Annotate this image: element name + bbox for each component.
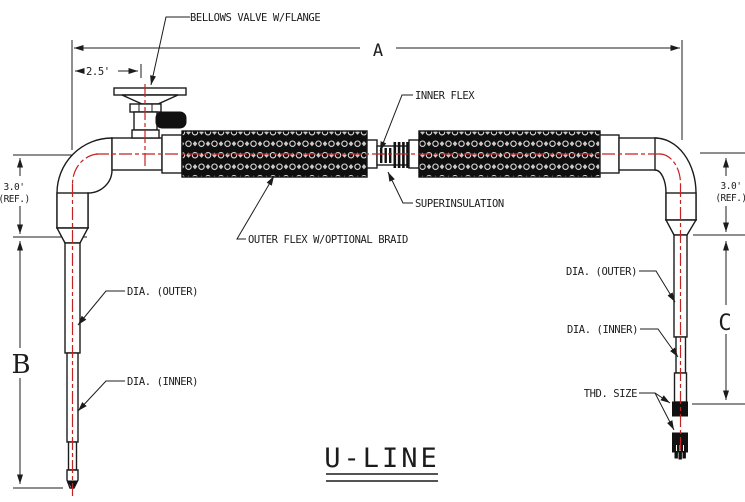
leader-bellows-valve <box>151 17 190 85</box>
leader-superinsulation <box>388 172 413 203</box>
dim-25-label: 2.5' <box>86 66 110 78</box>
leader-thd-size-1 <box>639 393 670 403</box>
leader-dia-outer-right <box>639 271 675 302</box>
valve-skirt <box>122 95 178 104</box>
superinsulation-label: SUPERINSULATION <box>415 198 504 210</box>
dim-b-label: B <box>11 350 30 380</box>
bellows-valve <box>114 88 186 138</box>
outer-flex-label: OUTER FLEX W/OPTIONAL BRAID <box>248 234 408 246</box>
valve-knob <box>156 112 186 128</box>
thd-size-label: THD. SIZE <box>584 388 637 400</box>
dia-outer-left-label: DIA. (OUTER) <box>127 286 198 298</box>
inner-flex-label: INNER FLEX <box>415 90 475 102</box>
leader-outer-flex <box>237 176 274 239</box>
callout-labels: BELLOWS VALVE W/FLANGE INNER FLEX SUPERI… <box>127 12 638 400</box>
leader-dia-outer-left <box>78 291 125 325</box>
ref-right-value: 3.0' <box>721 181 742 192</box>
bellows-valve-label: BELLOWS VALVE W/FLANGE <box>190 12 320 24</box>
u-line-technical-drawing: A 2.5' 3.0' (REF.) B 3.0' (REF.) C <box>0 0 745 502</box>
drawing-title: U-LINE <box>324 443 440 474</box>
dimension-b: B <box>11 241 63 488</box>
title-block: U-LINE <box>324 443 440 481</box>
ref-left-value: 3.0' <box>4 182 25 193</box>
dia-inner-left-label: DIA. (INNER) <box>127 376 198 388</box>
dia-outer-right-label: DIA. (OUTER) <box>566 266 637 278</box>
dim-a-label: A <box>373 41 383 61</box>
ref-left-suffix: (REF.) <box>0 194 30 205</box>
dimension-c: C <box>692 241 745 404</box>
pipe-assembly <box>57 131 696 488</box>
drawing-svg: A 2.5' 3.0' (REF.) B 3.0' (REF.) C <box>0 0 745 502</box>
dia-inner-right-label: DIA. (INNER) <box>567 324 638 336</box>
dim-c-label: C <box>718 311 731 336</box>
leader-dia-inner-left <box>78 381 125 411</box>
dimension-2-5: 2.5' <box>75 64 141 78</box>
dimension-ref-right: 3.0' (REF.) <box>693 153 745 235</box>
valve-flange <box>114 88 186 95</box>
leader-thd-size-2 <box>655 393 674 430</box>
leader-dia-inner-right <box>640 329 678 357</box>
leaders <box>78 17 678 430</box>
ref-right-suffix: (REF.) <box>715 193 745 204</box>
